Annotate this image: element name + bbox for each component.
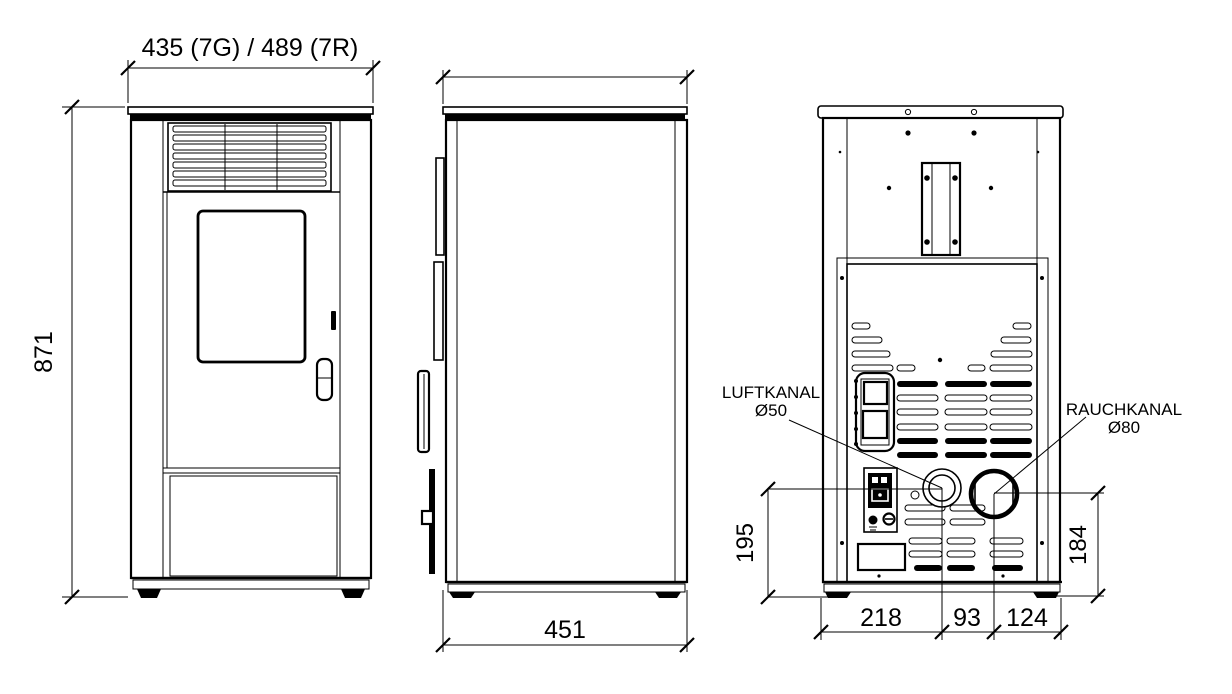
rear-right-height-value: 184 [1065, 525, 1092, 565]
side-stove [418, 107, 687, 598]
door-hinge-mark [331, 311, 336, 330]
fuse-holder [869, 516, 878, 525]
rear-view: LUFTKANAL Ø50 RAUCHKANAL Ø80 195 184 [722, 106, 1182, 640]
smoke-duct-size: Ø80 [1108, 418, 1140, 437]
air-duct-size: Ø50 [755, 401, 787, 420]
side-top-dimension [436, 70, 694, 104]
side-latch [422, 511, 433, 524]
side-base [446, 582, 687, 598]
rear-stove [818, 106, 1063, 598]
front-view: 435 (7G) / 489 (7R) 871 [30, 34, 380, 604]
drawing-svg: 435 (7G) / 489 (7R) 871 [0, 0, 1232, 694]
side-depth-dimension: 451 [436, 590, 694, 652]
front-base [131, 578, 371, 598]
front-stove [128, 107, 373, 598]
rear-bottom-dim-124: 124 [1006, 604, 1048, 632]
front-width-dimension: 435 (7G) / 489 (7R) [121, 34, 380, 103]
smoke-duct-label: RAUCHKANAL [1066, 400, 1182, 419]
front-air-grille [168, 123, 331, 191]
rear-chute-bracket [854, 373, 894, 451]
side-door-edge-lower [434, 262, 443, 360]
rear-bottom-dim-218: 218 [860, 604, 902, 632]
side-depth-value: 451 [544, 616, 586, 644]
door-window [198, 211, 305, 362]
cable-hole [911, 491, 919, 499]
rear-bottom-opening [858, 544, 905, 570]
rear-power-module [864, 468, 897, 532]
side-view: 451 [418, 70, 694, 652]
rear-wall-bracket [922, 163, 960, 255]
rear-bottom-dim-93: 93 [953, 604, 981, 632]
front-width-value: 435 (7G) / 489 (7R) [142, 34, 359, 62]
front-height-value: 871 [30, 331, 58, 373]
technical-drawing-canvas: 435 (7G) / 489 (7R) 871 [0, 0, 1232, 694]
air-duct-label: LUFTKANAL [722, 383, 820, 402]
door-handle [317, 359, 332, 400]
front-height-dimension: 871 [30, 100, 128, 604]
rear-left-height-value: 195 [732, 523, 759, 563]
side-door-edge-upper [436, 158, 444, 255]
